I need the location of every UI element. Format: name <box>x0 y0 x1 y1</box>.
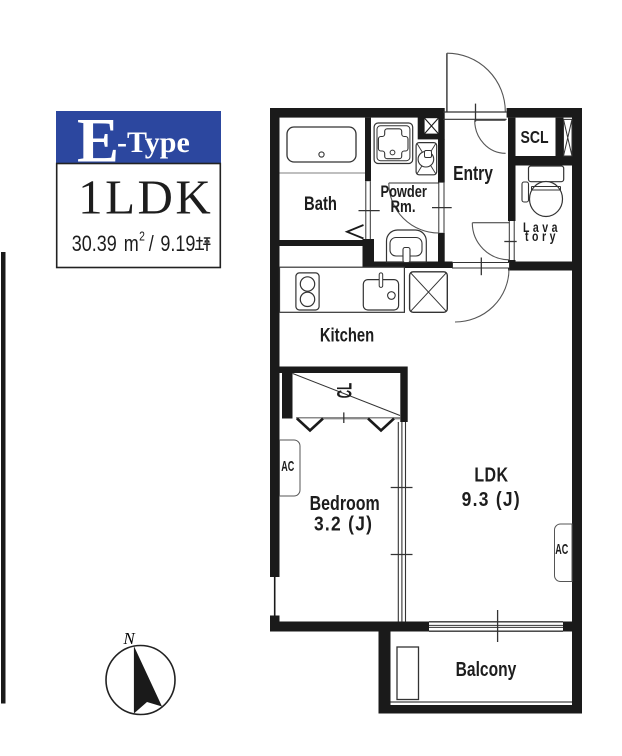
svg-text:2: 2 <box>139 229 145 243</box>
svg-text:LDK: LDK <box>474 462 508 485</box>
svg-text:AC: AC <box>555 541 568 558</box>
svg-text:Entry: Entry <box>453 162 493 184</box>
svg-text:-Type: -Type <box>117 126 190 159</box>
svg-text:Bath: Bath <box>304 193 337 214</box>
svg-text:Kitchen: Kitchen <box>320 325 374 346</box>
svg-text:9.3 (J): 9.3 (J) <box>462 489 521 512</box>
svg-text:Balcony: Balcony <box>456 658 517 680</box>
svg-text:E: E <box>77 105 119 175</box>
svg-text:tory: tory <box>525 229 559 245</box>
svg-text:1LDK: 1LDK <box>78 170 213 225</box>
svg-text:Bedroom: Bedroom <box>310 491 380 514</box>
svg-text:m: m <box>124 232 139 256</box>
svg-text:9.19: 9.19 <box>160 232 195 256</box>
svg-text:Rm.: Rm. <box>390 198 415 217</box>
svg-text:CL: CL <box>333 383 357 398</box>
svg-text:/: / <box>149 232 154 256</box>
svg-text:N: N <box>122 629 136 648</box>
svg-text:30.39: 30.39 <box>72 232 117 256</box>
svg-text:AC: AC <box>281 458 294 475</box>
svg-text:SCL: SCL <box>520 127 548 147</box>
svg-text:3.2 (J): 3.2 (J) <box>314 513 373 536</box>
